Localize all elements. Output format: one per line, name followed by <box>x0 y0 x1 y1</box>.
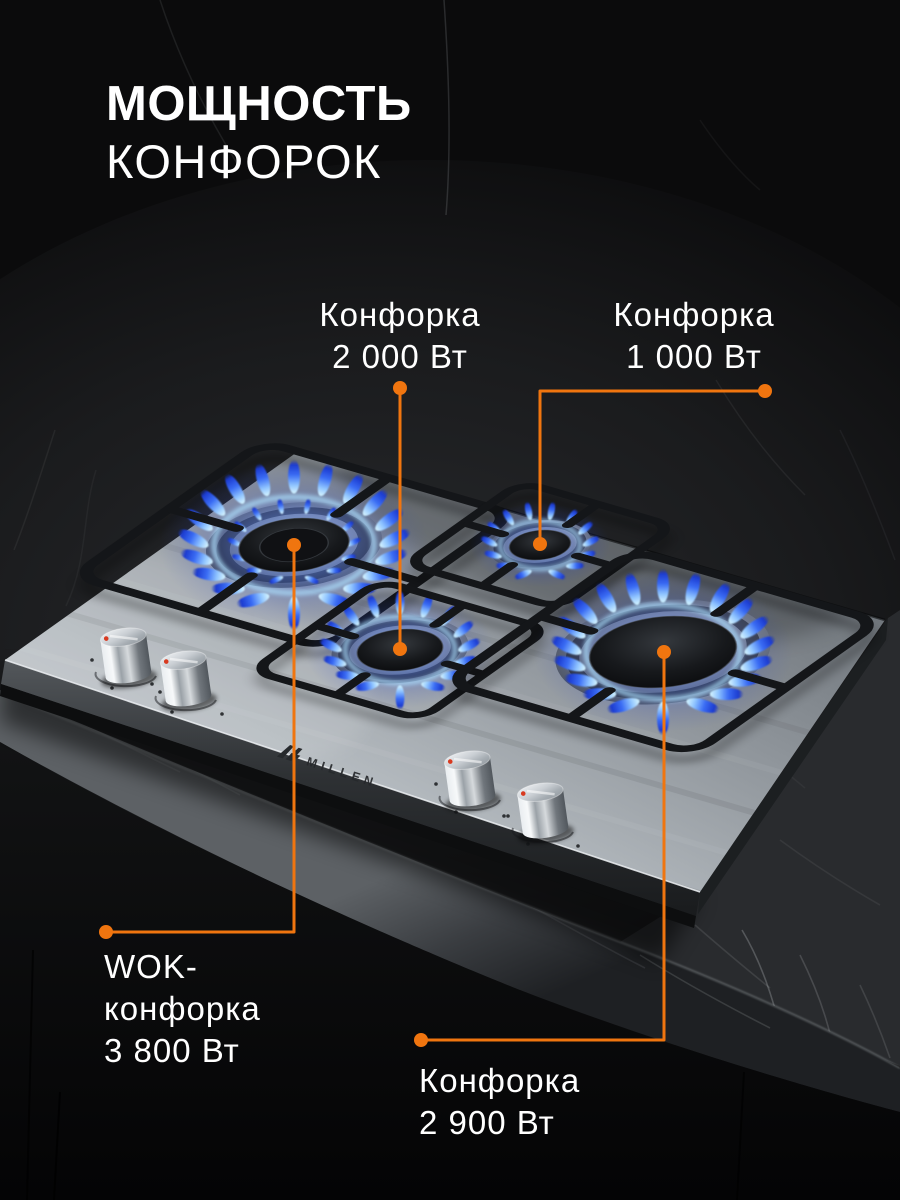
callout-dot <box>758 384 772 398</box>
callout-2900w-name: Конфорка <box>419 1060 580 1102</box>
flame-petal <box>710 688 744 700</box>
flame-petal <box>657 569 669 603</box>
callout-dot <box>99 925 113 939</box>
callout-2000w-power: 2 000 Вт <box>319 336 480 378</box>
callout-dot <box>414 1033 428 1047</box>
callout-2000w-name: Конфорка <box>319 294 480 336</box>
callout-label-1000w: Конфорка 1 000 Вт <box>613 294 774 378</box>
callout-dot <box>657 645 671 659</box>
title-line-1: МОЩНОСТЬ <box>106 76 412 133</box>
callout-label-2000w: Конфорка 2 000 Вт <box>319 294 480 378</box>
title-line-2: КОНФОРОК <box>106 133 412 190</box>
callout-wok-power: 3 800 Вт <box>104 1030 261 1072</box>
callout-label-2900w: Конфорка 2 900 Вт <box>419 1060 580 1144</box>
callout-dot <box>393 642 407 656</box>
page-title: МОЩНОСТЬ КОНФОРОК <box>106 76 412 190</box>
poster: MILLEN МОЩНОСТЬ КОНФОРОК Конфорка 2 000 … <box>0 0 900 1200</box>
callout-dot <box>393 381 407 395</box>
callout-wok-name-2: конфорка <box>104 988 261 1030</box>
callout-dot <box>287 538 301 552</box>
callout-wok-name-1: WOK- <box>104 946 261 988</box>
callout-dot <box>533 537 547 551</box>
flame-petal <box>396 685 405 710</box>
callout-1000w-power: 1 000 Вт <box>613 336 774 378</box>
flame-petal <box>288 460 300 494</box>
callout-2900w-power: 2 900 Вт <box>419 1102 580 1144</box>
callout-label-wok: WOK- конфорка 3 800 Вт <box>104 946 261 1072</box>
callout-1000w-name: Конфорка <box>613 294 774 336</box>
